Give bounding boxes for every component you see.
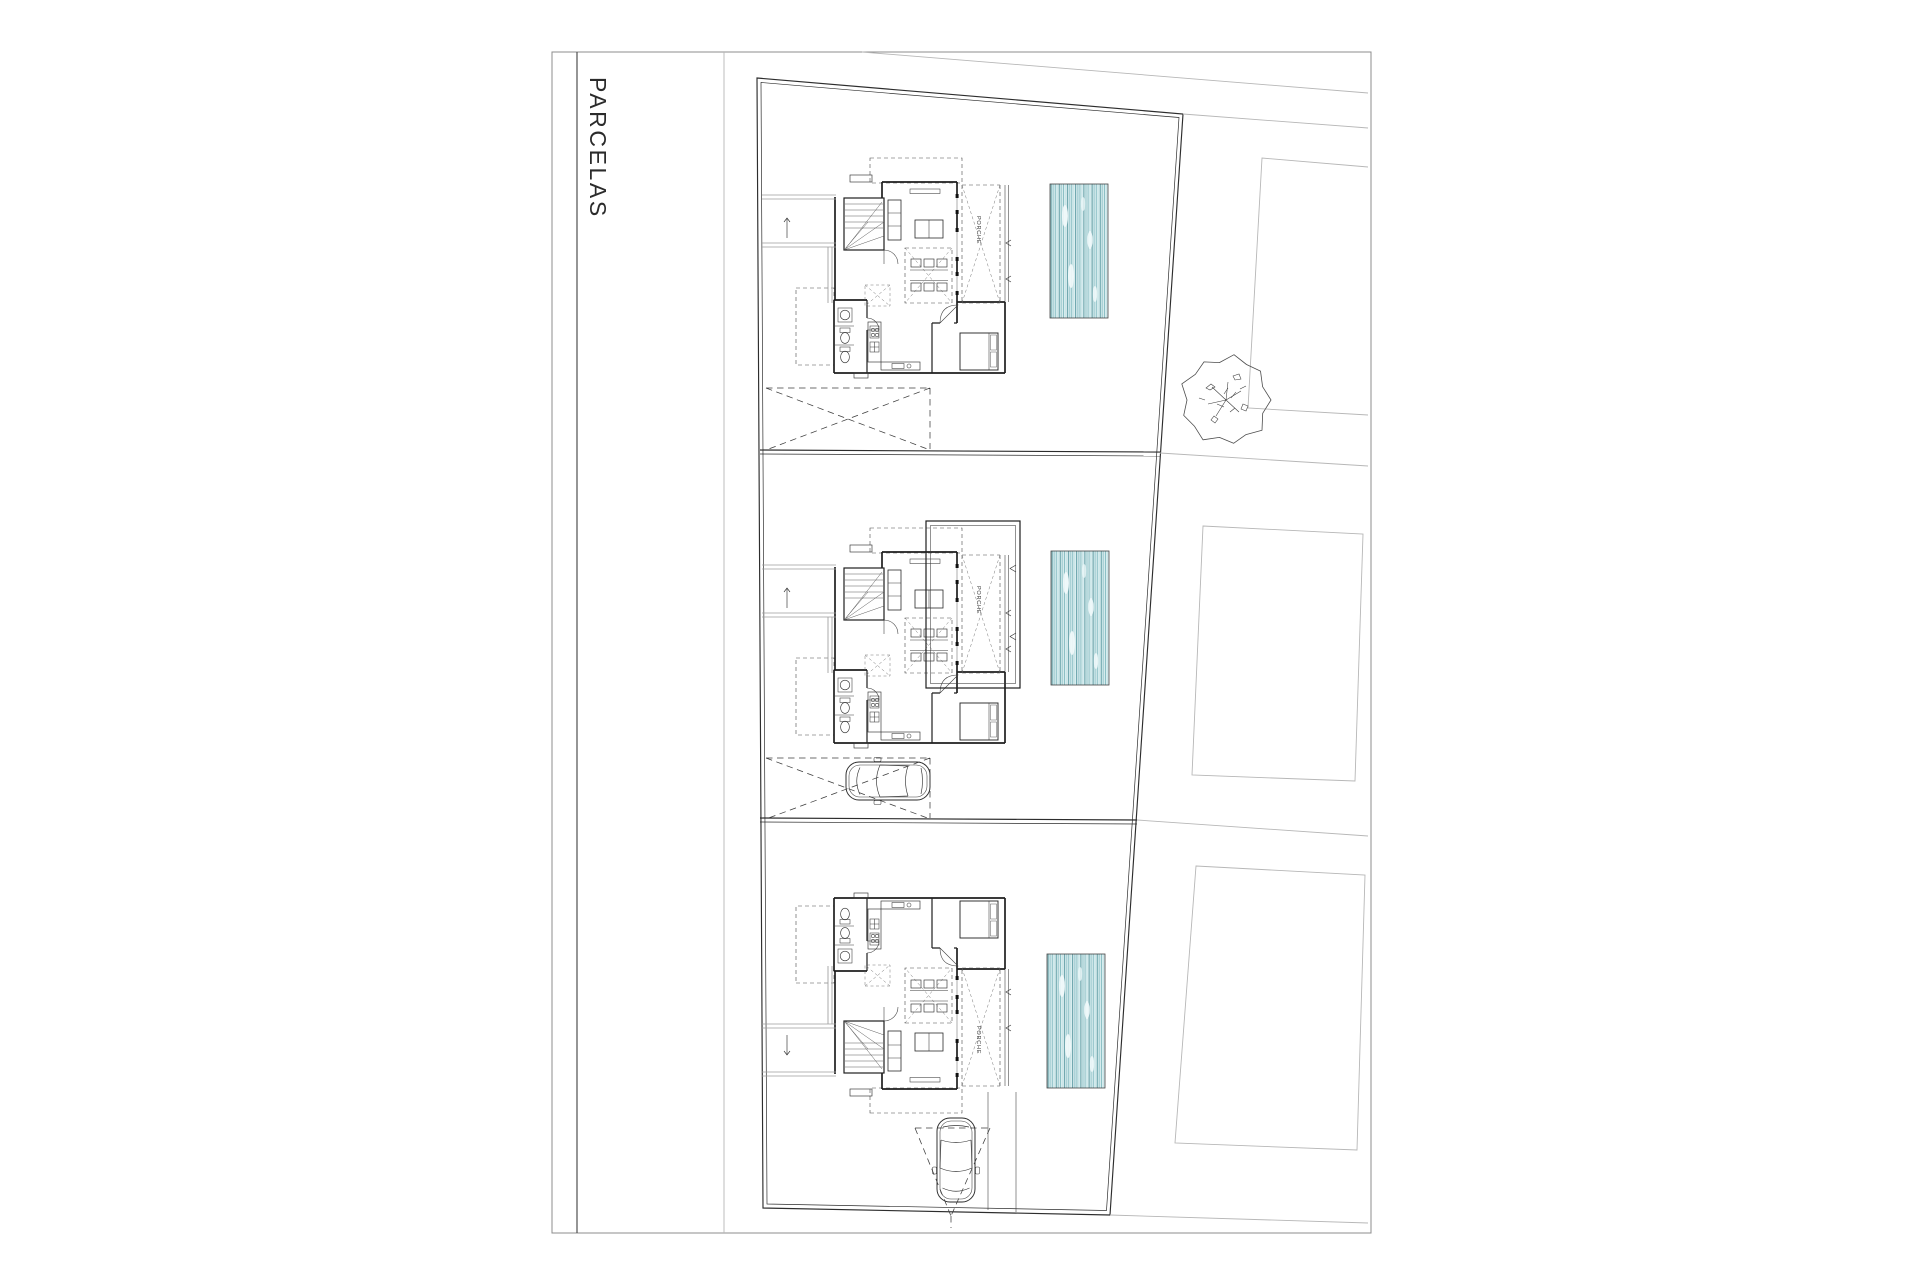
- porch-label-1: PORCHE: [975, 216, 981, 244]
- driveway-wedge-3: [915, 1128, 990, 1228]
- parcel-boundary: [757, 78, 1183, 1215]
- neighbor-plot-bottom: [1175, 866, 1365, 1150]
- car-middle-parcel: [846, 758, 930, 805]
- drawing-canvas: PARCELAS: [0, 0, 1920, 1280]
- porch-label-2: PORCHE: [975, 586, 981, 614]
- driveway-wedge-2: [766, 758, 930, 819]
- driveway-wedge-1: [766, 388, 930, 450]
- pool-1: [1050, 184, 1108, 318]
- parcel-division-1: [760, 450, 1160, 452]
- site-plan-drawing: PARCELAS: [0, 0, 1920, 1280]
- entry-steps: [762, 195, 836, 1076]
- neighbor-plot-middle: [1192, 526, 1363, 781]
- sheet-title: PARCELAS: [585, 77, 611, 219]
- tree-symbol: [1182, 355, 1271, 444]
- parcel-division-2: [760, 818, 1137, 820]
- pool-2: [1051, 551, 1109, 685]
- porch-label-3: PORCHE: [975, 1026, 981, 1054]
- neighbor-parcel-lines: [862, 52, 1368, 1223]
- terrace-middle-house: [926, 521, 1020, 688]
- sheet-frame: PARCELAS: [552, 52, 1371, 1233]
- car-bottom-parcel: [933, 1118, 980, 1202]
- driveway-wedges: [766, 388, 990, 1228]
- entry-arrows: [784, 218, 790, 1055]
- driveway-edges-bottom: [988, 1092, 1016, 1212]
- pool-3: [1047, 954, 1105, 1088]
